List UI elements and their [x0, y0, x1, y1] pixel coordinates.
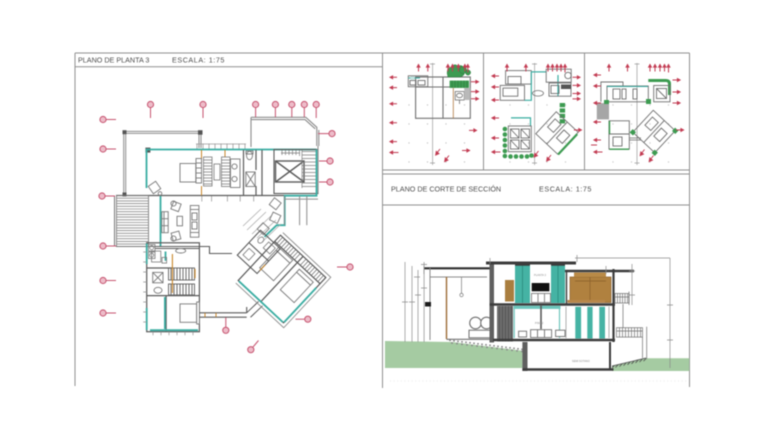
svg-text:PLANO DE PLANTA 3: PLANO DE PLANTA 3: [78, 56, 149, 65]
svg-text:PISO 2: PISO 2: [535, 321, 544, 325]
svg-text:PLANTA 3: PLANTA 3: [534, 273, 546, 277]
svg-text:ESCALA: 1:75: ESCALA: 1:75: [172, 56, 225, 65]
svg-text:PLANO DE CORTE DE SECCIÓN: PLANO DE CORTE DE SECCIÓN: [391, 185, 501, 194]
svg-text:SEMI SOTANO: SEMI SOTANO: [572, 359, 590, 363]
svg-text:ESCALA: 1:75: ESCALA: 1:75: [539, 185, 592, 194]
